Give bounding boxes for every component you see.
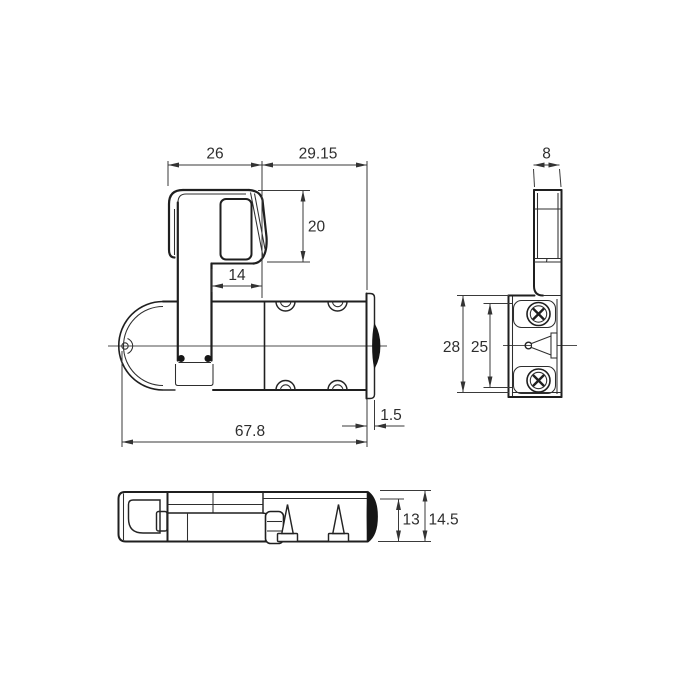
arm-lower-socket xyxy=(176,364,214,386)
bottom-end-cap xyxy=(367,492,377,543)
front-dimensions: 26 29.15 20 14 67.8 1.5 xyxy=(122,146,405,448)
dim-overall-depth: 14.5 xyxy=(429,512,459,529)
screw-icon xyxy=(527,369,550,392)
dim-hook-height: 20 xyxy=(308,219,326,236)
side-dimensions: 8 28 25 xyxy=(443,146,561,393)
bottom-view: 13 14.5 xyxy=(119,491,459,544)
dim-hook-width: 26 xyxy=(206,146,223,163)
dim-hook-underside: 14 xyxy=(228,267,246,284)
drawing-canvas: 26 29.15 20 14 67.8 1.5 xyxy=(0,0,700,700)
front-view: 26 29.15 20 14 67.8 1.5 xyxy=(108,146,405,448)
side-view: 8 28 25 xyxy=(443,146,577,398)
side-block-outline xyxy=(509,296,562,398)
front-hook-outline xyxy=(169,190,267,386)
dim-right-span: 29.15 xyxy=(299,146,338,163)
dim-arm-thickness: 8 xyxy=(542,146,551,163)
dim-pocket-height: 25 xyxy=(471,339,488,356)
bottom-arm-bar xyxy=(168,513,270,542)
front-cap-lens xyxy=(373,324,381,368)
bottom-dimensions: 13 14.5 xyxy=(378,491,459,542)
hook-window xyxy=(221,199,252,260)
bottom-left-inner xyxy=(129,500,161,533)
dim-cap-thickness: 1.5 xyxy=(380,407,402,424)
dim-overall-length: 67.8 xyxy=(235,423,265,440)
screw-icon xyxy=(527,303,550,326)
bottom-outline xyxy=(119,492,378,544)
mounting-spike xyxy=(329,505,349,542)
technical-drawing: 26 29.15 20 14 67.8 1.5 xyxy=(0,0,700,700)
bottom-cap-lens xyxy=(367,492,377,543)
dim-block-height: 28 xyxy=(443,339,460,356)
dim-body-depth: 13 xyxy=(403,512,420,529)
